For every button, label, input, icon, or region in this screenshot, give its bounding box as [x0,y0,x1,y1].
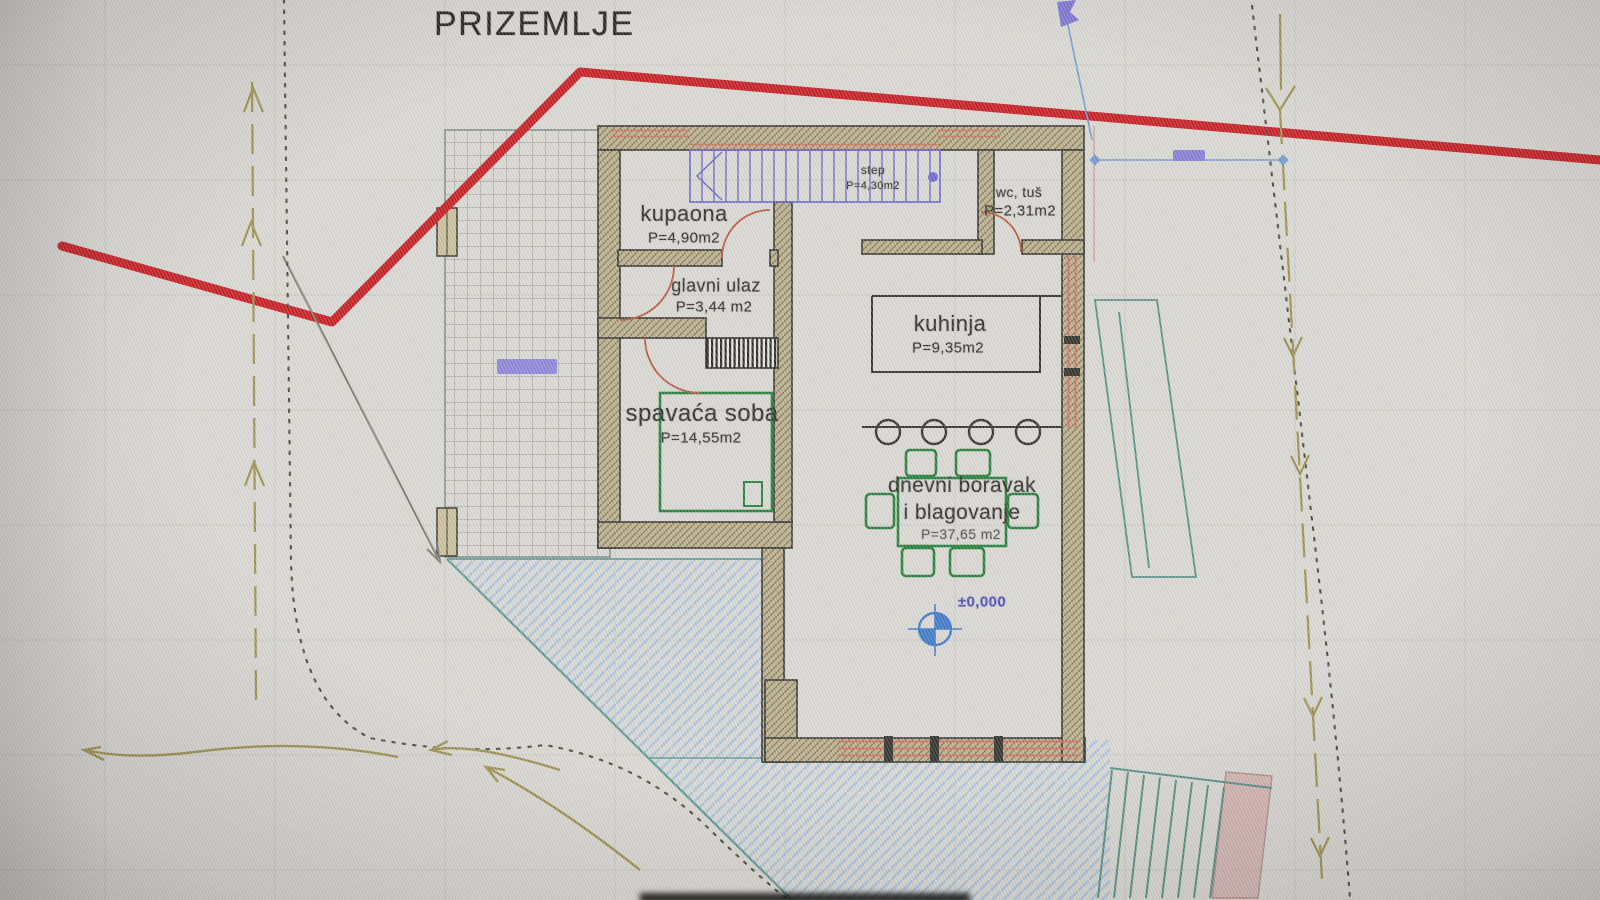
room-label-living-1: dnevni boravak [888,474,1036,498]
boundary-red-line [62,72,1600,322]
elevation-level-label: ±0,000 [958,594,1006,611]
floor-plan-photo: PRIZEMLJE kupaona P=4,90m2 glavni ulaz P… [0,0,1600,900]
room-area-bathroom: P=4,90m2 [648,230,720,247]
room-label-bedroom: spavaća soba [626,400,779,428]
room-label-wc: wc, tuš [996,184,1042,200]
room-area-bedroom: P=14,55m2 [661,430,742,447]
survey-line-left [242,70,264,700]
entrance-door-arc [620,266,674,320]
stair-break-line [697,152,722,200]
room-label-kitchen: kuhinja [914,311,987,337]
survey-line-right [1266,14,1329,880]
exterior-steps [1098,768,1272,898]
room-area-living: P=37,65 m2 [921,526,1001,542]
stairs-label: step [861,163,885,177]
path-arrows [84,741,640,870]
ramp-shaded-strip [1212,772,1272,898]
bar-stools [876,420,1040,444]
selection-grip [928,172,938,182]
room-label-entrance: glavni ulaz [671,276,760,297]
bedroom-door-arc [645,338,700,393]
wardrobe [706,338,778,368]
bathroom-door-arc [722,210,770,258]
stairs-area: P=4,30m2 [846,180,900,192]
room-area-kitchen: P=9,35m2 [912,340,984,357]
page-title: PRIZEMLJE [434,5,635,44]
room-area-wc: P=2,31m2 [984,203,1056,220]
room-area-entrance: P=3,44 m2 [676,299,753,316]
gray-sight-line [283,256,440,562]
selection-grip [1057,0,1079,27]
selection-grip [497,359,557,374]
elevation-marker-icon [908,604,962,656]
floor-plan-drawing [0,0,1600,900]
selection-grip [1173,150,1205,161]
room-label-bathroom: kupaona [640,201,727,227]
stairs [690,150,940,202]
dimension-line [1057,0,1289,166]
ramp-outline [1095,300,1196,577]
room-label-living-2: i blagovanje [904,501,1021,525]
